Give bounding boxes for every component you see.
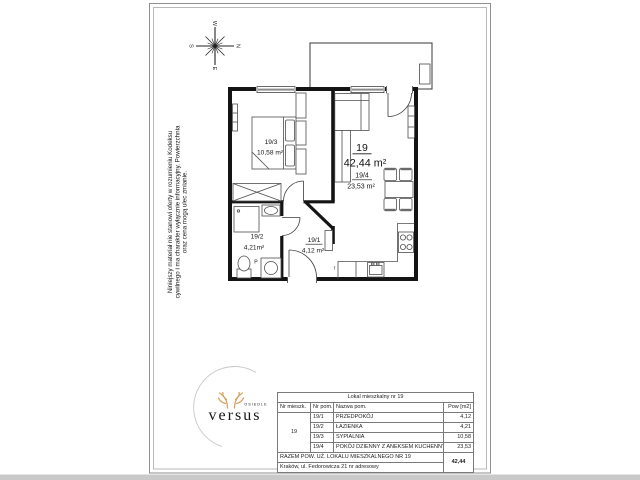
address-cell: Kraków, ul. Fedorowicza 21 nr adresowy <box>278 463 444 473</box>
living-number: 19/4 <box>355 173 369 180</box>
wardrobe <box>233 184 281 202</box>
compass-west-label: W <box>211 21 217 27</box>
kitchen-sink <box>368 263 385 278</box>
dining-table <box>385 182 413 198</box>
table-title: Lokal mieszkalny nr 19 <box>278 393 474 403</box>
compass-east-label: E <box>211 67 217 71</box>
room-number-cell: 19/1 <box>311 413 334 423</box>
pillow <box>286 145 295 166</box>
bedroom-radiator <box>233 104 238 131</box>
entry-mark: r <box>334 266 336 272</box>
table-row: 19 19/1 PRZEDPOKÓJ 4,12 <box>278 413 474 423</box>
washing-machine <box>261 258 281 278</box>
apartment-number-cell: 19 <box>278 413 311 453</box>
disclaimer-text: Niniejszy materiał nie stanowi oferty w … <box>167 125 189 298</box>
room-number-cell: 19/2 <box>311 423 334 433</box>
bedroom-window <box>257 87 295 93</box>
bottom-edge-strip <box>0 475 640 480</box>
room-name-cell: ŁAZIENKA <box>334 423 444 433</box>
room-number-cell: 19/3 <box>311 433 334 443</box>
balcony <box>310 43 432 89</box>
disclaimer-line-1: Niniejszy materiał nie stanowi oferty w … <box>167 130 174 293</box>
col-header-nr-pom: Nr pom. <box>311 403 334 413</box>
bedroom-area: 10,58 m² <box>257 150 284 157</box>
logo: versus OSIEDLE <box>194 366 268 446</box>
hall-number: 19/1 <box>308 237 321 244</box>
total-area-cell: 42,44 <box>444 453 474 473</box>
disclaimer-line-3: oraz cena mogą ulec zmianie. <box>182 171 189 253</box>
room-name-cell: POKÓJ DZIENNY Z ANEKSEM KUCHENNYM <box>334 443 444 453</box>
compass-rose-icon <box>196 27 234 65</box>
col-header-pow: Pow [m2] <box>444 403 474 413</box>
nightstand <box>296 149 306 174</box>
room-area-cell: 23,53 <box>444 443 474 453</box>
hall-area: 4,12 m² <box>302 248 325 255</box>
col-header-nr-mieszk: Nr mieszk. <box>278 403 311 413</box>
area-table: Lokal mieszkalny nr 19 Nr mieszk. Nr pom… <box>277 392 474 473</box>
washer-label: P <box>254 260 258 266</box>
brand-tagline: OSIEDLE <box>244 403 267 407</box>
bathroom-sink <box>262 205 280 216</box>
table-title-row: Lokal mieszkalny nr 19 <box>278 393 474 403</box>
col-header-nazwa-pom: Nazwa pom. <box>334 403 444 413</box>
nightstand <box>296 93 306 118</box>
nightstand <box>296 121 306 145</box>
hall-cabinet <box>325 231 333 251</box>
toilet <box>237 256 251 278</box>
compass-south-label: S <box>188 44 194 48</box>
pillow <box>286 120 295 141</box>
room-name-cell: SYPIALNIA <box>334 433 444 443</box>
bathroom-number: 19/2 <box>251 234 264 241</box>
floorplan-page: W N E S Niniejszy materiał nie stanowi o… <box>0 0 640 480</box>
living-radiator <box>408 106 415 138</box>
disclaimer-line-2: cywilnego i ma charakter wyłącznie infor… <box>174 125 181 298</box>
room-area-cell: 10,58 <box>444 433 474 443</box>
room-area-cell: 4,12 <box>444 413 474 423</box>
room-number-cell: 19/4 <box>311 443 334 453</box>
table-header-row: Nr mieszk. Nr pom. Nazwa pom. Pow [m2] <box>278 403 474 413</box>
total-label-cell: RAZEM POW. UŻ. LOKALU MIESZKALNEGO NR 19 <box>278 453 444 463</box>
living-window <box>351 87 384 93</box>
stove <box>399 232 414 253</box>
compass-north-label: N <box>235 44 241 48</box>
bathroom-area: 4,21m² <box>244 245 265 252</box>
bedroom-number: 19/3 <box>265 139 278 146</box>
apartment-number: 19 <box>356 142 368 154</box>
antlers-icon <box>219 393 244 409</box>
room-name-cell: PRZEDPOKÓJ <box>334 413 444 423</box>
brand-name: versus <box>209 407 262 424</box>
apartment-area: 42,44 m² <box>344 158 387 170</box>
living-area: 23,53 m² <box>347 184 375 191</box>
shower-drain <box>237 210 239 212</box>
room-area-cell: 4,21 <box>444 423 474 433</box>
table-total-row: RAZEM POW. UŻ. LOKALU MIESZKALNEGO NR 19… <box>278 453 474 463</box>
